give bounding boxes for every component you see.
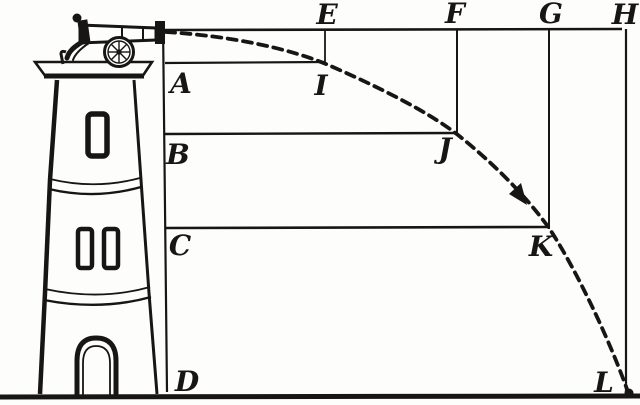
label-i: I xyxy=(313,69,328,102)
label-e: E xyxy=(315,0,338,31)
tower-window-mid-left xyxy=(78,229,92,268)
label-b: B xyxy=(165,138,190,171)
projectile-diagram: E F G H A I B J C K D L xyxy=(0,0,640,405)
cannon-cascabel-knob xyxy=(73,14,82,23)
cannon-wheel-hub xyxy=(116,49,121,54)
label-f: F xyxy=(444,0,467,30)
label-j: J xyxy=(433,132,453,165)
diagram-canvas: E F G H A I B J C K D L xyxy=(0,0,640,405)
trajectory-path xyxy=(166,32,628,392)
point-labels: E F G H A I B J C K D L xyxy=(165,0,640,399)
tower-window-mid-right xyxy=(104,229,118,268)
drop-line xyxy=(163,23,167,392)
label-d: D xyxy=(174,365,200,398)
label-c: C xyxy=(169,229,192,262)
trajectory xyxy=(166,32,634,398)
tower-band-lower xyxy=(45,287,150,295)
label-k: K xyxy=(528,230,555,263)
tower xyxy=(35,51,157,397)
impact-dot xyxy=(625,389,634,398)
tower-right-wall xyxy=(134,80,157,394)
a-line xyxy=(165,62,325,63)
label-h: H xyxy=(611,0,640,31)
cannon xyxy=(67,14,165,67)
b-line xyxy=(165,133,457,134)
tower-band-upper-2 xyxy=(49,187,141,194)
tower-band-lower-2 xyxy=(44,297,151,305)
c-line xyxy=(165,227,549,228)
tower-window-upper xyxy=(88,114,107,156)
label-a: A xyxy=(167,67,192,100)
label-l: L xyxy=(593,366,614,399)
label-g: G xyxy=(539,0,563,30)
ground-line xyxy=(0,396,640,397)
tower-band-upper xyxy=(50,178,140,184)
tower-left-wall xyxy=(40,80,57,394)
tower-door-inner xyxy=(83,346,110,397)
